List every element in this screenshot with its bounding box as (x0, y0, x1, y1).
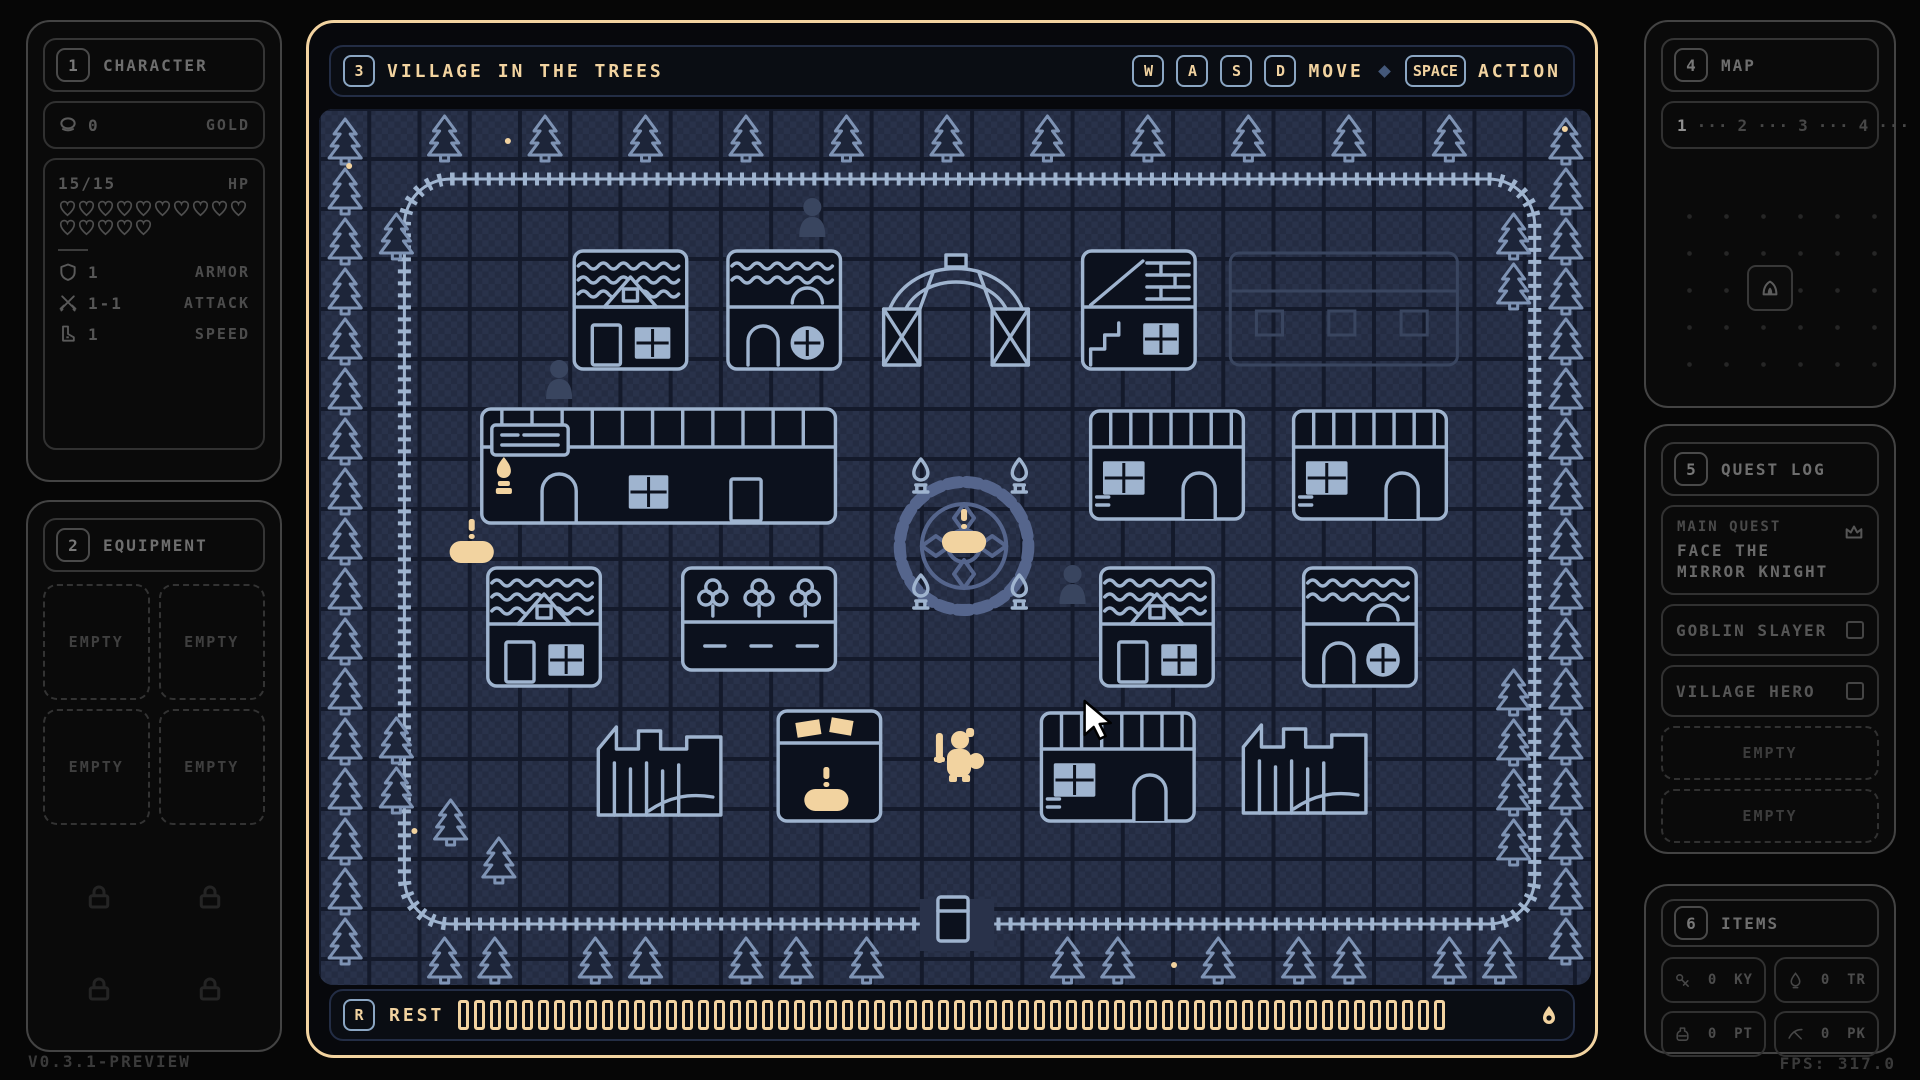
rest-segment (1194, 1000, 1205, 1030)
item-code: TR (1847, 972, 1866, 988)
item-count: 0 (1708, 972, 1717, 988)
heart-icon (58, 199, 77, 218)
armor-label: ARMOR (195, 263, 250, 281)
rest-segment (1130, 1000, 1141, 1030)
rest-segment (1050, 1000, 1061, 1030)
shop-stall (778, 711, 880, 821)
rest-segment (650, 1000, 661, 1030)
minimap (1662, 186, 1878, 390)
swords-icon (58, 293, 78, 313)
action-label: ACTION (1478, 61, 1561, 82)
character-panel-header[interactable]: 1 CHARACTER (43, 38, 265, 92)
rest-segment (1034, 1000, 1045, 1030)
level-separator: ··· (1697, 116, 1729, 135)
main-quest-line2: MIRROR KNIGHT (1677, 562, 1863, 581)
rest-segment (986, 1000, 997, 1030)
rest-segment (1258, 1000, 1269, 1030)
side-quest-name: VILLAGE HERO (1676, 682, 1816, 701)
rest-segment (778, 1000, 789, 1030)
map-title: MAP (1721, 56, 1756, 75)
rest-segment (1146, 1000, 1157, 1030)
gold-row: 0 GOLD (43, 101, 265, 149)
rest-segment (1082, 1000, 1093, 1030)
rest-segment (586, 1000, 597, 1030)
pickaxe-icon (1787, 1026, 1804, 1043)
potion-icon (1674, 1026, 1691, 1043)
rest-segment (922, 1000, 933, 1030)
quest-log-title: QUEST LOG (1721, 460, 1826, 479)
coin-icon (58, 115, 78, 135)
game-frame: 3 VILLAGE IN THE TREES W A S D MOVE SPAC… (306, 20, 1598, 1058)
rest-segment (1274, 1000, 1285, 1030)
equipment-panel-header[interactable]: 2 EQUIPMENT (43, 518, 265, 572)
speed-stat: 1 SPEED (58, 324, 250, 344)
hp-label: HP (228, 175, 250, 193)
stage-header: 3 VILLAGE IN THE TREES W A S D MOVE SPAC… (329, 45, 1575, 97)
rest-segment (874, 1000, 885, 1030)
rest-segment (554, 1000, 565, 1030)
rest-segment (1114, 1000, 1125, 1030)
equipment-title: EQUIPMENT (103, 536, 208, 555)
item-slot-potions[interactable]: 0 PT (1661, 1011, 1766, 1057)
gold-label: GOLD (206, 116, 250, 134)
rest-segment (1002, 1000, 1013, 1030)
rest-segment (522, 1000, 533, 1030)
rest-segment (538, 1000, 549, 1030)
rest-segment (1098, 1000, 1109, 1030)
quest-checkbox (1846, 621, 1864, 639)
item-count: 0 (1821, 972, 1830, 988)
lock-icon (195, 974, 225, 1004)
rest-segments (458, 1000, 1523, 1030)
hotkey-1-keycap: 1 (56, 48, 90, 82)
rest-label: REST (389, 1005, 444, 1026)
map-panel: 4 MAP 1 ··· 2 ··· 3 ··· 4 ··· (1644, 20, 1896, 408)
hotkey-4-keycap: 4 (1674, 48, 1708, 82)
gold-value: 0 (88, 116, 100, 135)
quest-empty-slot: EMPTY (1661, 789, 1879, 843)
rest-segment (714, 1000, 725, 1030)
rest-segment (1162, 1000, 1173, 1030)
droplet-icon (1537, 1003, 1561, 1027)
map-panel-header[interactable]: 4 MAP (1661, 38, 1879, 92)
speed-label: SPEED (195, 325, 250, 343)
heart-icon (77, 218, 96, 237)
version-label: V0.3.1-PREVIEW (28, 1052, 191, 1071)
level-4: 4 (1859, 116, 1870, 135)
rest-segment (634, 1000, 645, 1030)
rest-segment (938, 1000, 949, 1030)
rest-segment (1418, 1000, 1429, 1030)
rest-segment (698, 1000, 709, 1030)
rest-bar[interactable]: R REST (329, 989, 1575, 1041)
rest-segment (1178, 1000, 1189, 1030)
move-label: MOVE (1308, 61, 1363, 82)
fps-counter: FPS: 317.0 (1644, 1054, 1896, 1073)
equipment-slot[interactable]: EMPTY (159, 709, 266, 825)
key-s: S (1220, 55, 1252, 87)
heart-icon (134, 199, 153, 218)
rest-segment (1434, 1000, 1445, 1030)
side-quest-name: GOBLIN SLAYER (1676, 621, 1827, 640)
heart-icon (115, 218, 134, 237)
attack-value: 1-1 (88, 294, 123, 313)
current-location-marker (1747, 265, 1793, 311)
rest-segment (1338, 1000, 1349, 1030)
rest-segment (490, 1000, 501, 1030)
level-separator: ··· (1878, 116, 1910, 135)
heart-icon (96, 218, 115, 237)
heart-icon (210, 199, 229, 218)
crown-icon (1843, 521, 1865, 543)
rest-segment (858, 1000, 869, 1030)
heart-icon (191, 199, 210, 218)
equipment-slot[interactable]: EMPTY (43, 584, 150, 700)
rest-segment (602, 1000, 613, 1030)
controls-hint: W A S D MOVE SPACE ACTION (1132, 55, 1561, 87)
boot-icon (58, 324, 78, 344)
hp-value: 15/15 (58, 174, 116, 193)
key-a: A (1176, 55, 1208, 87)
heart-icon (77, 199, 96, 218)
speed-value: 1 (88, 325, 100, 344)
rest-segment (970, 1000, 981, 1030)
armor-value: 1 (88, 263, 100, 282)
torch-icon (1787, 972, 1804, 989)
shop-sign (492, 425, 568, 455)
rest-segment (890, 1000, 901, 1030)
heart-icon (58, 218, 77, 237)
hp-hearts (58, 199, 254, 237)
rest-segment (1018, 1000, 1029, 1030)
locked-slots (43, 851, 265, 1035)
equipment-slot[interactable]: EMPTY (43, 709, 150, 825)
locked-slot (154, 943, 265, 1035)
stage-title: VILLAGE IN THE TREES (387, 61, 664, 82)
character-title: CHARACTER (103, 56, 208, 75)
quest-empty-slot: EMPTY (1661, 726, 1879, 780)
rest-segment (1290, 1000, 1301, 1030)
game-map-canvas (319, 109, 1591, 985)
item-slot-torches[interactable]: 0 TR (1774, 957, 1879, 1003)
level-separator: ··· (1818, 116, 1850, 135)
rest-segment (810, 1000, 821, 1030)
key-w: W (1132, 55, 1164, 87)
items-panel: 6 ITEMS 0 KY 0 TR 0 PT 0 PK (1644, 884, 1896, 1054)
game-map[interactable] (319, 109, 1591, 985)
main-quest[interactable]: MAIN QUEST FACE THE MIRROR KNIGHT (1661, 505, 1879, 595)
heart-icon (115, 199, 134, 218)
armor-stat: 1 ARMOR (58, 262, 250, 282)
main-quest-label: MAIN QUEST (1677, 519, 1863, 535)
rest-segment (1306, 1000, 1317, 1030)
rest-segment (1322, 1000, 1333, 1030)
rest-segment (506, 1000, 517, 1030)
rest-segment (1226, 1000, 1237, 1030)
character-panel: 1 CHARACTER 0 GOLD 15/15 HP 1 ARMOR 1-1 … (26, 20, 282, 482)
rest-segment (474, 1000, 485, 1030)
lock-icon (84, 882, 114, 912)
equipment-slot[interactable]: EMPTY (159, 584, 266, 700)
rest-segment (618, 1000, 629, 1030)
locked-slot (43, 943, 154, 1035)
lock-icon (84, 974, 114, 1004)
rest-segment (682, 1000, 693, 1030)
heart-icon (172, 199, 191, 218)
items-title: ITEMS (1721, 914, 1779, 933)
side-quest-row[interactable]: GOBLIN SLAYER (1661, 604, 1879, 656)
quest-log-panel: 5 QUEST LOG MAIN QUEST FACE THE MIRROR K… (1644, 424, 1896, 854)
key-icon (1674, 972, 1691, 989)
tent-icon (1759, 277, 1781, 299)
rest-segment (666, 1000, 677, 1030)
hotkey-2-keycap: 2 (56, 528, 90, 562)
key-r: R (343, 999, 375, 1031)
locked-slot (154, 851, 265, 943)
item-count: 0 (1821, 1026, 1830, 1042)
rest-segment (842, 1000, 853, 1030)
rest-segment (826, 1000, 837, 1030)
level-1: 1 (1677, 116, 1688, 135)
rest-segment (458, 1000, 469, 1030)
diamond-icon (1378, 65, 1391, 78)
rest-segment (1066, 1000, 1077, 1030)
level-separator: ··· (1757, 116, 1789, 135)
item-slot-keys[interactable]: 0 KY (1661, 957, 1766, 1003)
item-code: KY (1734, 972, 1753, 988)
key-space: SPACE (1405, 55, 1466, 87)
side-quest-row[interactable]: VILLAGE HERO (1661, 665, 1879, 717)
main-quest-line1: FACE THE (1677, 541, 1863, 560)
rest-segment (570, 1000, 581, 1030)
rest-segment (1210, 1000, 1221, 1030)
quest-checkbox (1846, 682, 1864, 700)
level-progress: 1 ··· 2 ··· 3 ··· 4 ··· (1661, 101, 1879, 149)
rest-segment (762, 1000, 773, 1030)
heart-icon (96, 199, 115, 218)
level-2: 2 (1738, 116, 1749, 135)
item-code: PT (1734, 1026, 1753, 1042)
shield-icon (58, 262, 78, 282)
rest-segment (1242, 1000, 1253, 1030)
quest-log-header[interactable]: 5 QUEST LOG (1661, 442, 1879, 496)
rest-segment (906, 1000, 917, 1030)
rest-segment (794, 1000, 805, 1030)
rest-segment (1370, 1000, 1381, 1030)
hotkey-5-keycap: 5 (1674, 452, 1708, 486)
item-slot-pickaxes[interactable]: 0 PK (1774, 1011, 1879, 1057)
heart-icon (229, 199, 248, 218)
stats-box: 15/15 HP 1 ARMOR 1-1 ATTACK 1 SPEED (43, 158, 265, 450)
rest-segment (730, 1000, 741, 1030)
rest-segment (746, 1000, 757, 1030)
rest-segment (1354, 1000, 1365, 1030)
key-d: D (1264, 55, 1296, 87)
rest-segment (1402, 1000, 1413, 1030)
divider (58, 249, 88, 251)
hotkey-3-keycap: 3 (343, 55, 375, 87)
locked-slot (43, 851, 154, 943)
walled-garden (683, 568, 836, 670)
item-code: PK (1847, 1026, 1866, 1042)
heart-icon (153, 199, 172, 218)
equipment-panel: 2 EQUIPMENT EMPTY EMPTY EMPTY EMPTY (26, 500, 282, 1052)
market-row (482, 409, 836, 523)
items-header[interactable]: 6 ITEMS (1661, 899, 1879, 947)
level-3: 3 (1798, 116, 1809, 135)
rest-segment (954, 1000, 965, 1030)
item-count: 0 (1708, 1026, 1717, 1042)
lock-icon (195, 882, 225, 912)
ruined-building (598, 727, 721, 815)
attack-stat: 1-1 ATTACK (58, 293, 250, 313)
attack-label: ATTACK (184, 294, 250, 312)
hotkey-6-keycap: 6 (1674, 906, 1708, 940)
heart-icon (134, 218, 153, 237)
rest-segment (1386, 1000, 1397, 1030)
